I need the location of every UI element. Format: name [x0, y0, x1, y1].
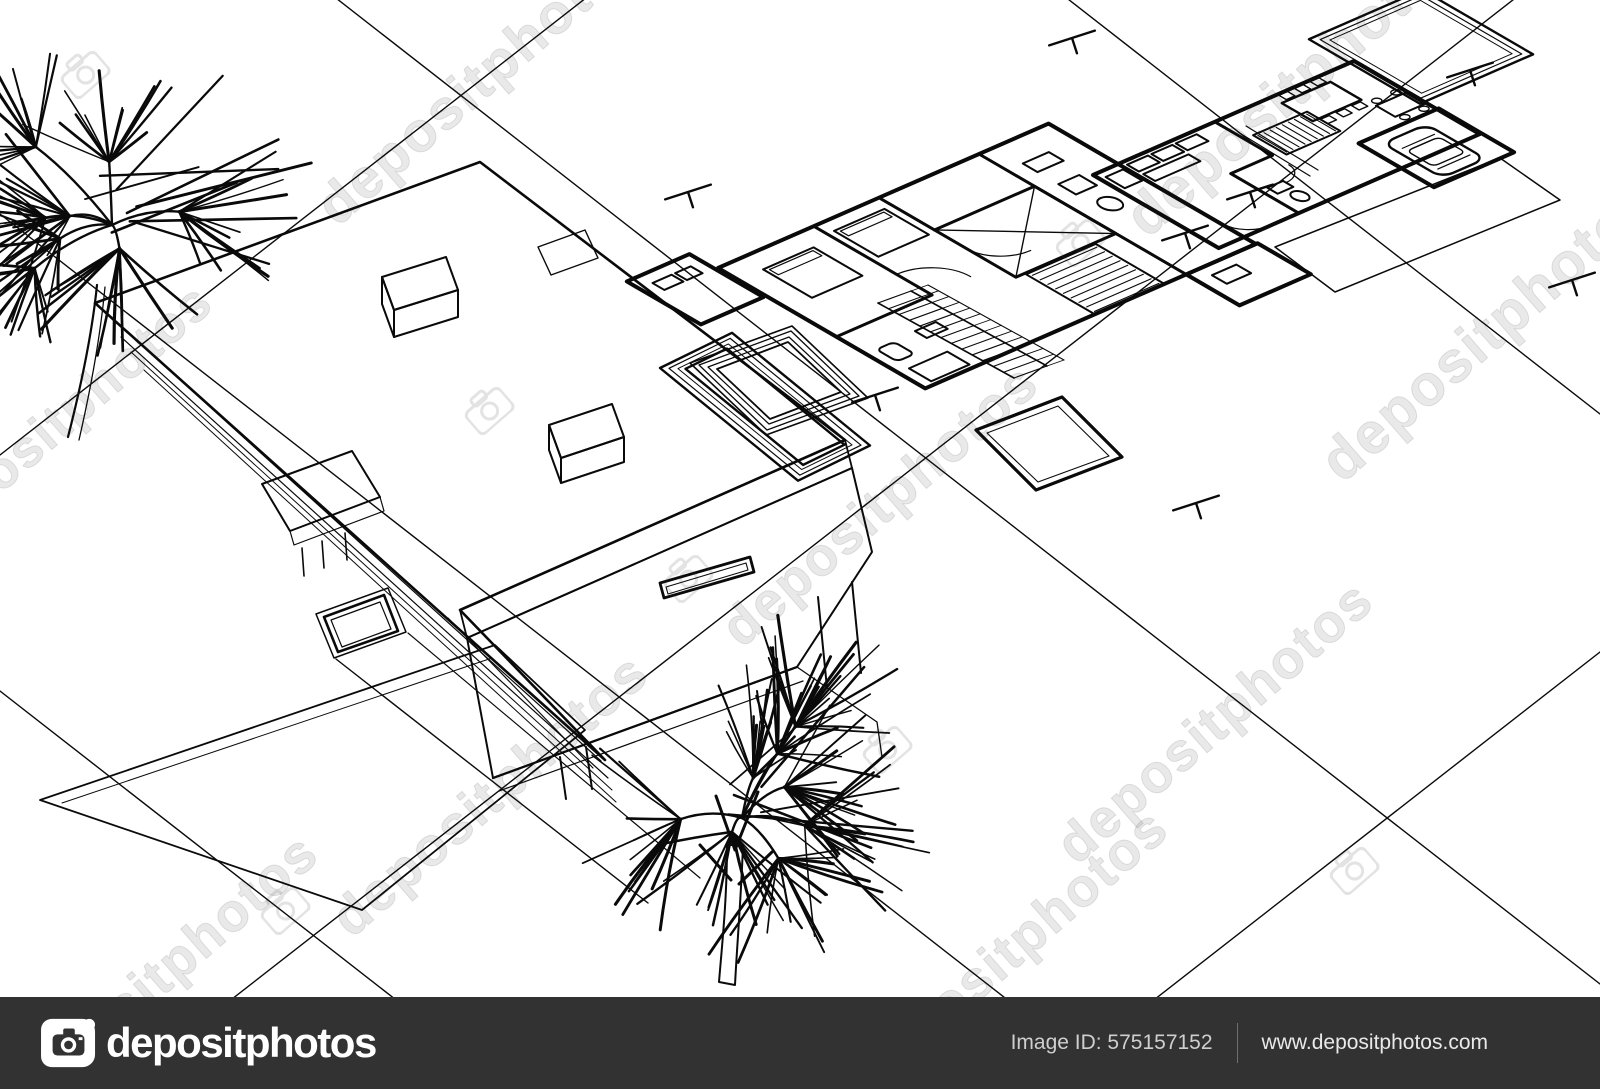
section-cut-markers: [665, 31, 1600, 526]
pine-tree-sketch-front: [583, 615, 930, 985]
architectural-sketch-canvas: [0, 0, 1600, 997]
footer-bar: depositphotos Image ID: 575157152 www.de…: [0, 997, 1600, 1089]
toilet: [1286, 189, 1313, 203]
door-arc: [1223, 212, 1271, 236]
brand-name: depositphotos: [106, 1019, 376, 1067]
plan-annex-room: [976, 397, 1122, 490]
watermark-diagonal-lines: [0, 0, 1600, 997]
camera-icon: [40, 1016, 98, 1070]
driveway-slab: [40, 645, 585, 910]
external-stair-hatch: [878, 285, 1064, 378]
section-marker: [1049, 31, 1100, 61]
upper-plan-pool-deck: [660, 333, 870, 481]
chimney-box-1: [382, 257, 458, 337]
roof-parapet-step: [538, 230, 598, 275]
bed: [834, 209, 929, 257]
porch-steps: [316, 588, 700, 903]
stock-image-page: depositphotos depositphotos depositphoto…: [0, 0, 1600, 1089]
sink: [915, 322, 948, 338]
section-marker: [852, 388, 903, 418]
bed: [763, 247, 862, 297]
brand-logo: depositphotos: [40, 1016, 376, 1070]
bathtub: [909, 352, 969, 382]
chimney-box-2: [549, 404, 624, 483]
image-id-label: Image ID: 575157152: [1011, 1031, 1213, 1055]
footer-divider: [1237, 1023, 1238, 1063]
sink: [1267, 181, 1293, 194]
section-marker: [1549, 273, 1600, 303]
toilet: [876, 342, 914, 362]
upper-floor-plan: [627, 108, 1311, 448]
website-url: www.depositphotos.com: [1262, 1031, 1488, 1055]
section-marker: [665, 185, 716, 215]
section-marker: [1173, 496, 1224, 526]
